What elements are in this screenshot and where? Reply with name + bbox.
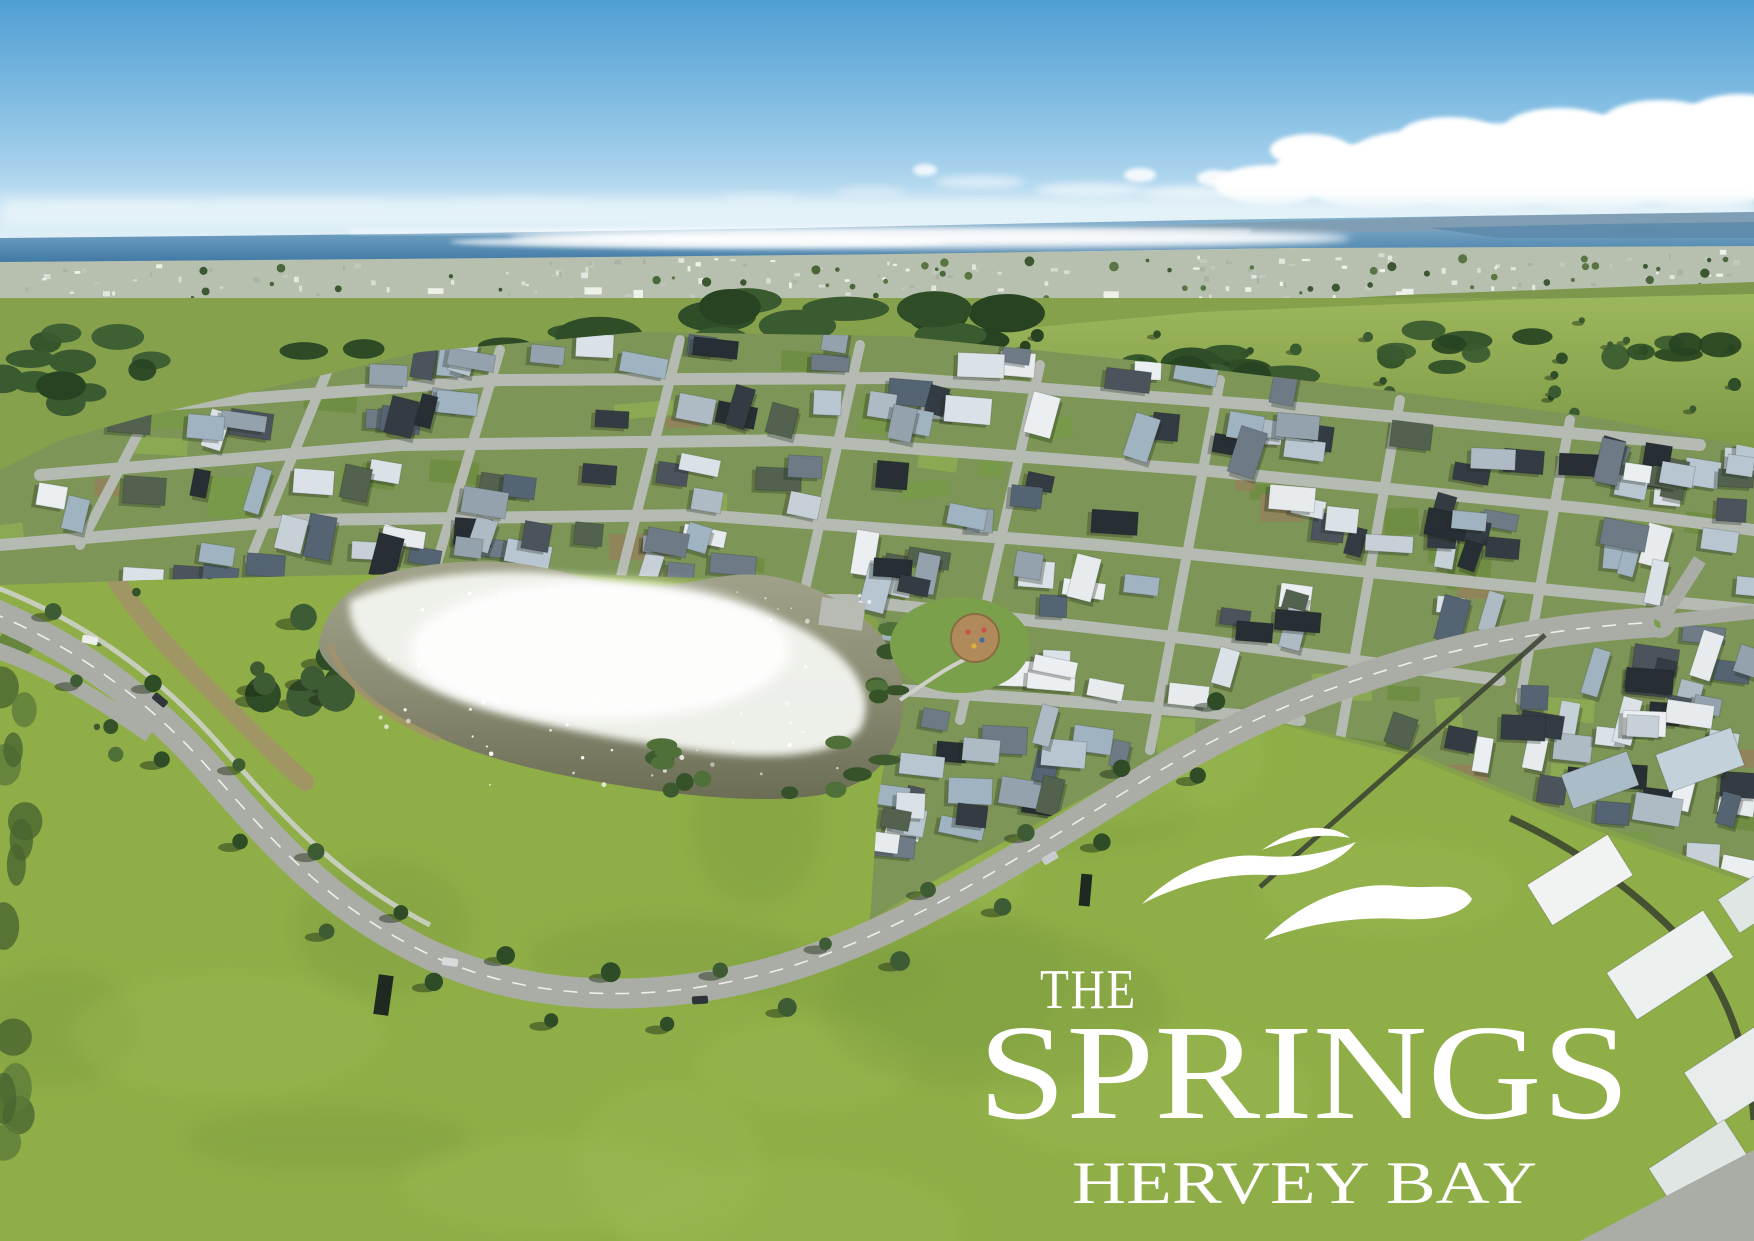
aerial-photograph: THE SPRINGS HERVEY BAY [0,0,1754,1241]
logo-subtitle: HERVEY BAY [1072,1150,1537,1216]
logo-title: SPRINGS [978,998,1630,1148]
